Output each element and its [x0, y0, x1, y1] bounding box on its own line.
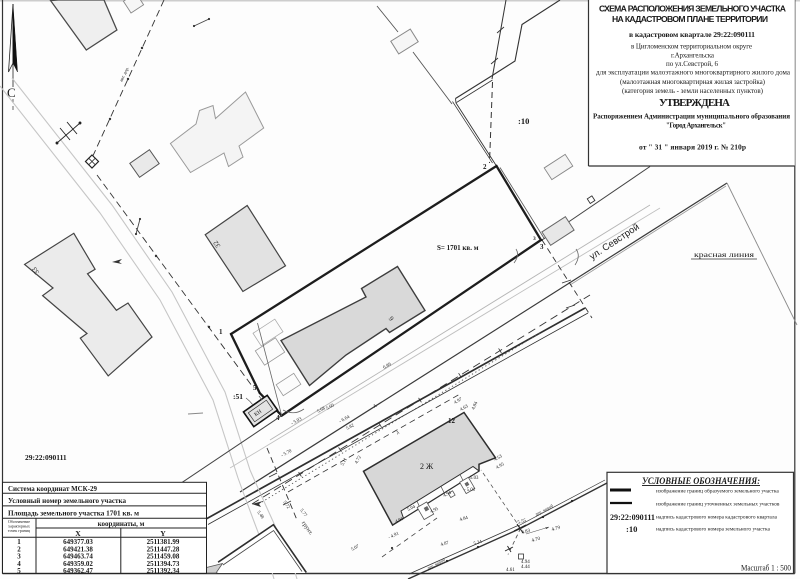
svg-text::10: :10	[626, 524, 637, 534]
svg-text:координаты, м: координаты, м	[98, 520, 145, 528]
svg-text:5: 5	[253, 384, 257, 392]
svg-text::51: :51	[233, 392, 243, 401]
svg-text:С: С	[7, 85, 16, 100]
svg-text:12: 12	[448, 417, 456, 425]
svg-text:649362.47: 649362.47	[63, 567, 93, 575]
svg-text:Площадь земельного участка 17: Площадь земельного участка 1701 кв. м	[8, 509, 139, 518]
svg-text:2: 2	[483, 163, 487, 171]
svg-text:4.61: 4.61	[506, 568, 515, 573]
svg-text:2511392.34: 2511392.34	[147, 567, 180, 575]
svg-text:УТВЕРЖДЕНА: УТВЕРЖДЕНА	[659, 97, 730, 109]
svg-text::10: :10	[518, 116, 529, 126]
svg-text:НА КАДАСТРОВОМ ПЛАНЕ ТЕРРИТОРИ: НА КАДАСТРОВОМ ПЛАНЕ ТЕРРИТОРИИ	[612, 14, 768, 24]
svg-text:УСЛОВНЫЕ ОБОЗНАЧЕНИЯ:: УСЛОВНЫЕ ОБОЗНАЧЕНИЯ:	[642, 477, 760, 487]
svg-text:S= 1701 кв. м: S= 1701 кв. м	[437, 244, 479, 252]
svg-text:для эксплуатации малоэтажного: для эксплуатации малоэтажного многокварт…	[596, 69, 791, 77]
svg-text:от " 31 " января 2019 г. № 21: от " 31 " января 2019 г. № 210р	[639, 143, 746, 152]
svg-text:(малоэтажная многоквартирная ж: (малоэтажная многоквартирная жилая застр…	[620, 78, 766, 86]
svg-text:г.Архангельска: г.Архангельска	[671, 52, 715, 60]
svg-text:точек границ: точек границ	[8, 528, 31, 533]
svg-text:"Город Архангельск": "Город Архангельск"	[666, 123, 726, 130]
svg-text:Y: Y	[160, 529, 166, 538]
svg-text:Система координат МСК-29: Система координат МСК-29	[8, 484, 97, 493]
svg-text:изображение границ образуемого: изображение границ образуемого земельног…	[656, 488, 779, 495]
svg-text:3: 3	[533, 236, 536, 242]
svg-text:29:22:090111: 29:22:090111	[25, 453, 67, 462]
svg-text:1: 1	[219, 328, 223, 336]
svg-text:по ул.Севстрой, 6: по ул.Севстрой, 6	[666, 60, 719, 68]
svg-text:29:22:090111: 29:22:090111	[610, 513, 655, 522]
svg-text:5: 5	[17, 567, 21, 575]
svg-text:СХЕМА РАСПОЛОЖЕНИЯ ЗЕМЕЛЬНОГО: СХЕМА РАСПОЛОЖЕНИЯ ЗЕМЕЛЬНОГО УЧАСТКА	[599, 4, 786, 14]
svg-text:5.03: 5.03	[470, 476, 479, 481]
svg-text:(категория земель - земли насе: (категория земель - земли населенных пун…	[622, 87, 764, 95]
svg-text:X: X	[75, 529, 81, 538]
svg-text:надпись кадастрового номера зе: надпись кадастрового номера земельного у…	[656, 527, 771, 533]
svg-text:- 5.01: - 5.01	[464, 488, 476, 493]
svg-text:изображение границ уточненных: изображение границ уточненных земельных …	[656, 501, 780, 508]
svg-text:Условный номер земельного учас: Условный номер земельного участка	[8, 496, 126, 505]
svg-text:4.44: 4.44	[521, 565, 530, 570]
svg-text:в Цигломенском территориальном: в Цигломенском территориальном округе	[631, 43, 752, 51]
svg-text:в кадастровом квартале 29:22:0: в кадастровом квартале 29:22:090111	[629, 30, 755, 39]
svg-text:надпись кадастрового номера ка: надпись кадастрового номера кадастрового…	[656, 515, 778, 521]
svg-text:Распоряжением Администрации му: Распоряжением Администрации муниципально…	[593, 113, 790, 121]
svg-text:красная линия: красная линия	[694, 251, 755, 259]
svg-text:2 Ж: 2 Ж	[420, 462, 434, 471]
svg-text:3: 3	[540, 243, 544, 251]
svg-text:Масштаб 1 : 500: Масштаб 1 : 500	[741, 564, 791, 573]
